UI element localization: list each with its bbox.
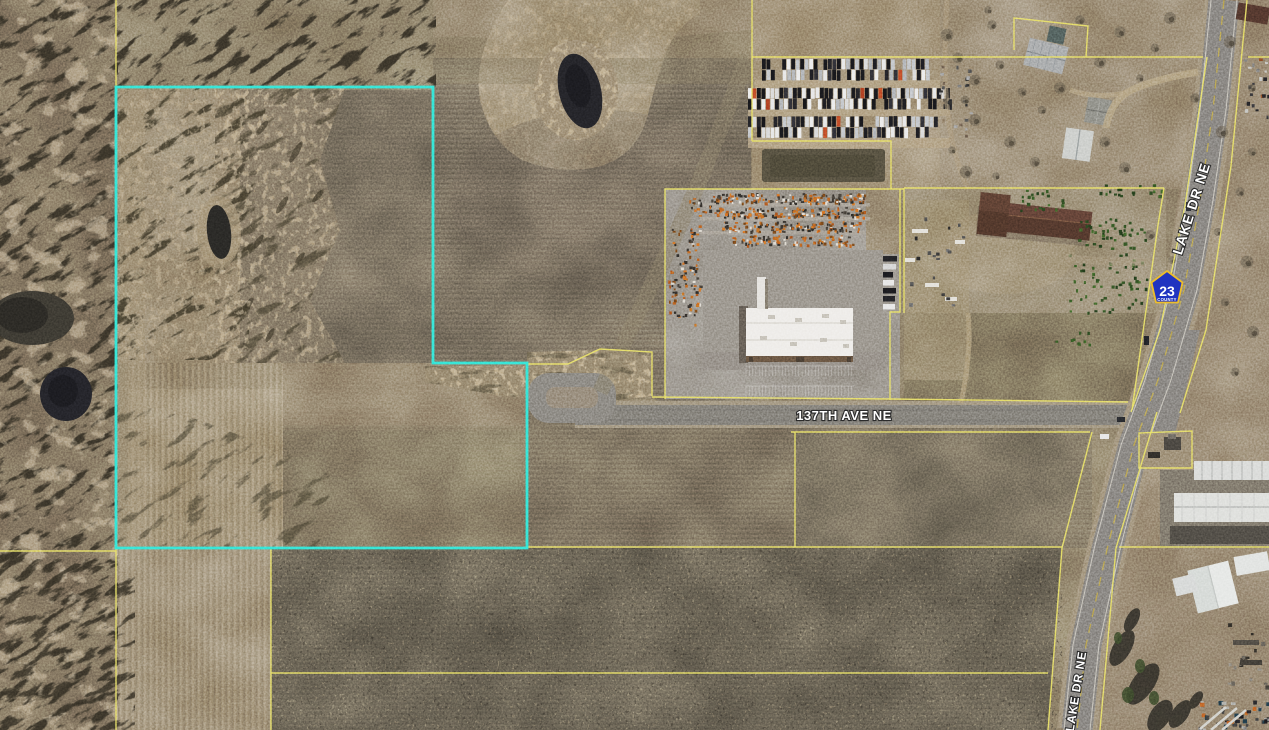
svg-text:137TH AVE NE: 137TH AVE NE — [796, 408, 892, 423]
svg-text:COUNTY: COUNTY — [1157, 297, 1176, 302]
